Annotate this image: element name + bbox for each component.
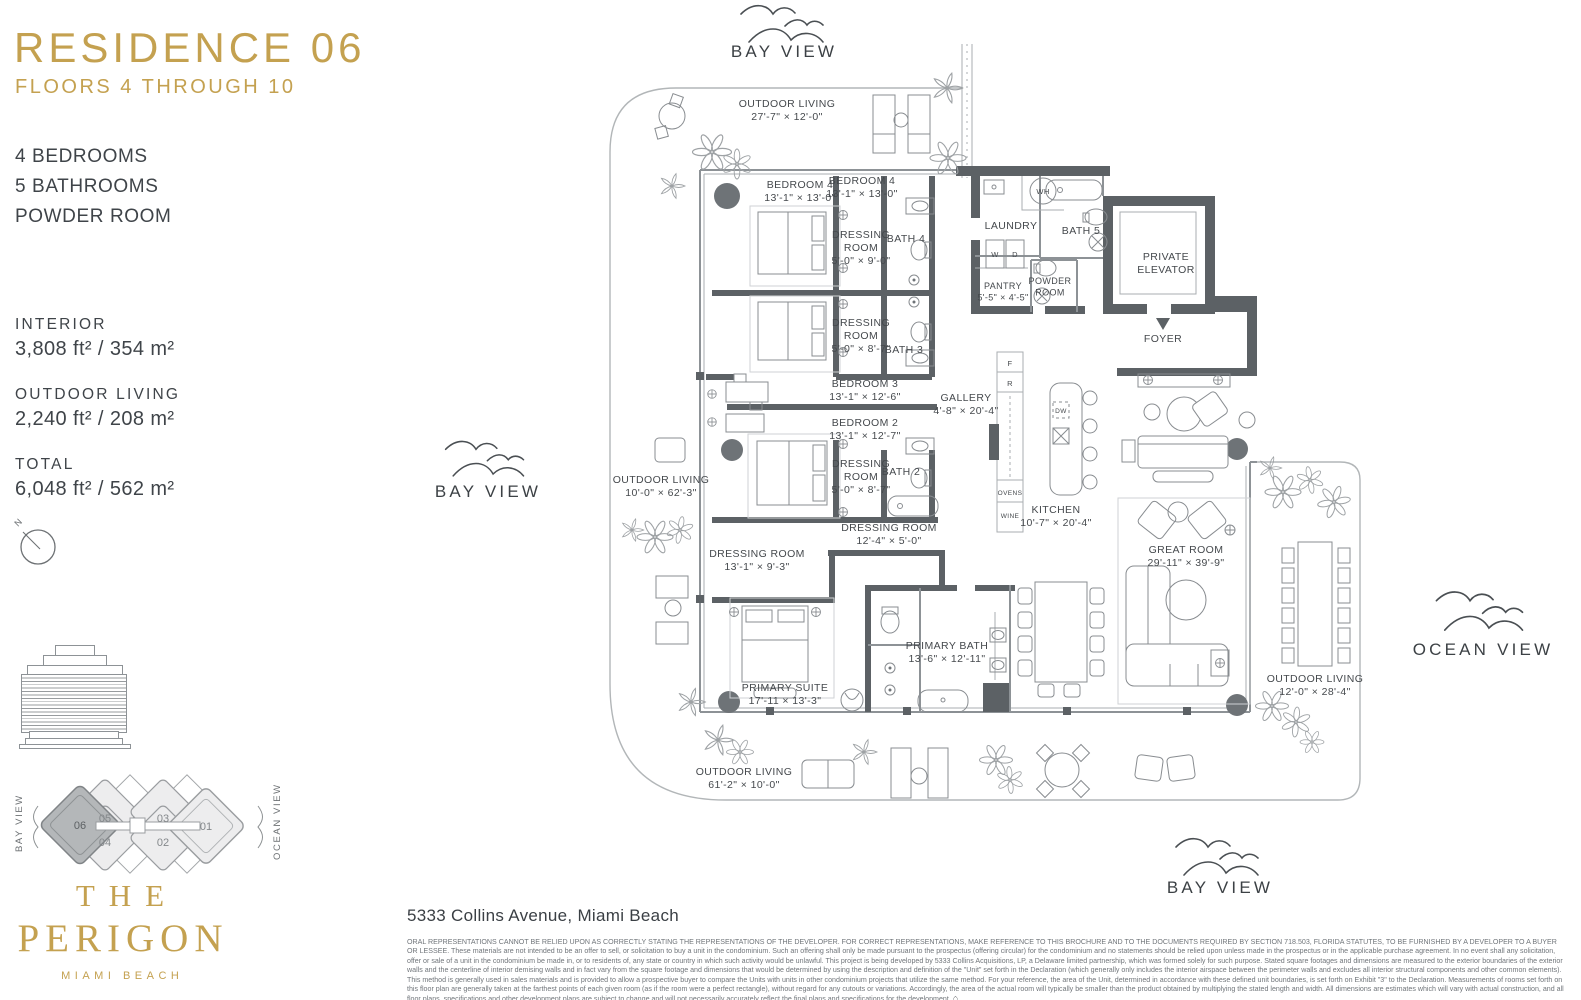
label-primary-suite: PRIMARY SUITE17'-11 × 13'-3" [742, 682, 829, 707]
compass-icon: N [10, 512, 80, 582]
key-plan-footprint [34, 775, 263, 873]
label-ovens: OVENS [998, 490, 1023, 497]
label-outdoor-living-right: OUTDOOR LIVING12'-0" × 28'-4" [1267, 673, 1364, 698]
key-plan-unit-03: 03 [157, 813, 169, 825]
logo-tagline: MIAMI BEACH [0, 970, 240, 982]
label-bath-2: BATH 2 [882, 466, 920, 478]
label-bath-5: BATH 5 [1062, 225, 1100, 237]
key-plan-ocean-view-label: OCEAN VIEW [272, 783, 283, 860]
label-foyer: FOYER [1144, 333, 1182, 345]
key-plan-unit-01: 01 [200, 821, 212, 833]
label-primary-bath: PRIMARY BATH13'-6" × 12'-11" [906, 640, 988, 665]
label-dressing-room-mid: DRESSING ROOM12'-4" × 5'-0" [841, 522, 937, 547]
label-bath-4: BATH 4 [887, 233, 925, 245]
label-wh: WH [1036, 187, 1049, 196]
label-outdoor-living-top: OUTDOOR LIVING27'-7" × 12'-0" [739, 98, 836, 123]
stat-label: OUTDOOR LIVING [15, 386, 180, 404]
label-private-elevator: PRIVATEELEVATOR [1137, 251, 1194, 276]
key-plan: 06 05 04 03 02 01 BAY VIEW OCEAN VIEW [8, 772, 288, 877]
label-pantry: PANTRY5'-5" × 4'-5" [977, 281, 1028, 302]
key-plan-unit-05: 05 [99, 813, 111, 825]
label-outdoor-living-left: OUTDOOR LIVING10'-0" × 62'-3" [613, 474, 710, 499]
legal-disclaimer: ORAL REPRESENTATIONS CANNOT BE RELIED UP… [407, 938, 1565, 1000]
label-fridge: R [1007, 379, 1013, 388]
logo-line-2: PERIGON [0, 916, 240, 961]
brochure-page: RESIDENCE 06 FLOORS 4 THROUGH 10 4 BEDRO… [0, 0, 1581, 1000]
stat-interior: INTERIOR 3,808 ft² / 354 m² [15, 316, 175, 361]
label-bedroom-4b: BEDROOM 413'-1" × 13'-0" [826, 175, 897, 200]
label-gallery: GALLERY4'-8" × 20'-4" [933, 392, 998, 417]
stat-value: 2,240 ft² / 208 m² [15, 408, 180, 431]
label-washer: W [991, 250, 999, 259]
label-bath-3: BATH 3 [885, 344, 923, 356]
label-kitchen: KITCHEN10'-7" × 20'-4" [1020, 504, 1091, 529]
page-title: RESIDENCE 06 [14, 24, 365, 72]
view-label-bottom: BAY VIEW [1167, 878, 1273, 897]
address: 5333 Collins Avenue, Miami Beach [407, 906, 679, 926]
key-plan-unit-04: 04 [99, 837, 111, 849]
stat-label: INTERIOR [15, 316, 175, 334]
view-label-left: BAY VIEW [435, 482, 541, 501]
label-powder-room: POWDERROOM [1029, 276, 1072, 297]
legal-disclaimer-text: ORAL REPRESENTATIONS CANNOT BE RELIED UP… [407, 938, 1564, 1000]
feature-bathrooms: 5 BATHROOMS [15, 172, 172, 202]
stat-outdoor-living: OUTDOOR LIVING 2,240 ft² / 208 m² [15, 386, 180, 431]
label-laundry: LAUNDRY [985, 220, 1038, 232]
brand-logo: THE PERIGON MIAMI BEACH [0, 878, 240, 982]
equal-housing-icon: ⌂ [953, 994, 958, 1000]
key-plan-bay-view-label: BAY VIEW [14, 794, 25, 852]
label-fridge-freezer: F [1008, 359, 1013, 368]
label-dw: DW [1055, 408, 1067, 415]
label-great-room: GREAT ROOM29'-11" × 39'-9" [1148, 544, 1225, 569]
logo-line-1: THE [0, 878, 240, 914]
page-subtitle: FLOORS 4 THROUGH 10 [15, 76, 296, 99]
label-bedroom-4a: BEDROOM 413'-1" × 13'-0" [764, 179, 835, 204]
stat-label: TOTAL [15, 456, 175, 474]
feature-bedrooms: 4 BEDROOMS [15, 142, 172, 172]
key-plan-unit-02: 02 [157, 837, 169, 849]
label-bedroom-2: BEDROOM 213'-1" × 12'-7" [829, 417, 900, 442]
floor-plan: BAY VIEW BAY VIEW OCEAN VIEW BAY VIEW OU… [420, 0, 1560, 915]
building-elevation-illustration [15, 643, 135, 763]
label-wine: WINE [1001, 513, 1020, 520]
feature-powder-room: POWDER ROOM [15, 202, 172, 232]
label-dressing-room-primary: DRESSING ROOM13'-1" × 9'-3" [709, 548, 805, 573]
label-bedroom-3: BEDROOM 313'-1" × 12'-6" [829, 378, 900, 403]
stat-total: TOTAL 6,048 ft² / 562 m² [15, 456, 175, 501]
feature-list: 4 BEDROOMS 5 BATHROOMS POWDER ROOM [15, 142, 172, 232]
compass-north-label: N [12, 517, 24, 529]
key-plan-unit-06: 06 [74, 820, 86, 832]
label-outdoor-living-bottom: OUTDOOR LIVING61'-2" × 10'-0" [696, 766, 793, 791]
stat-value: 6,048 ft² / 562 m² [15, 478, 175, 501]
view-label-right: OCEAN VIEW [1413, 640, 1554, 659]
stat-value: 3,808 ft² / 354 m² [15, 338, 175, 361]
label-dryer: D [1012, 250, 1018, 259]
view-label-top: BAY VIEW [731, 42, 837, 61]
